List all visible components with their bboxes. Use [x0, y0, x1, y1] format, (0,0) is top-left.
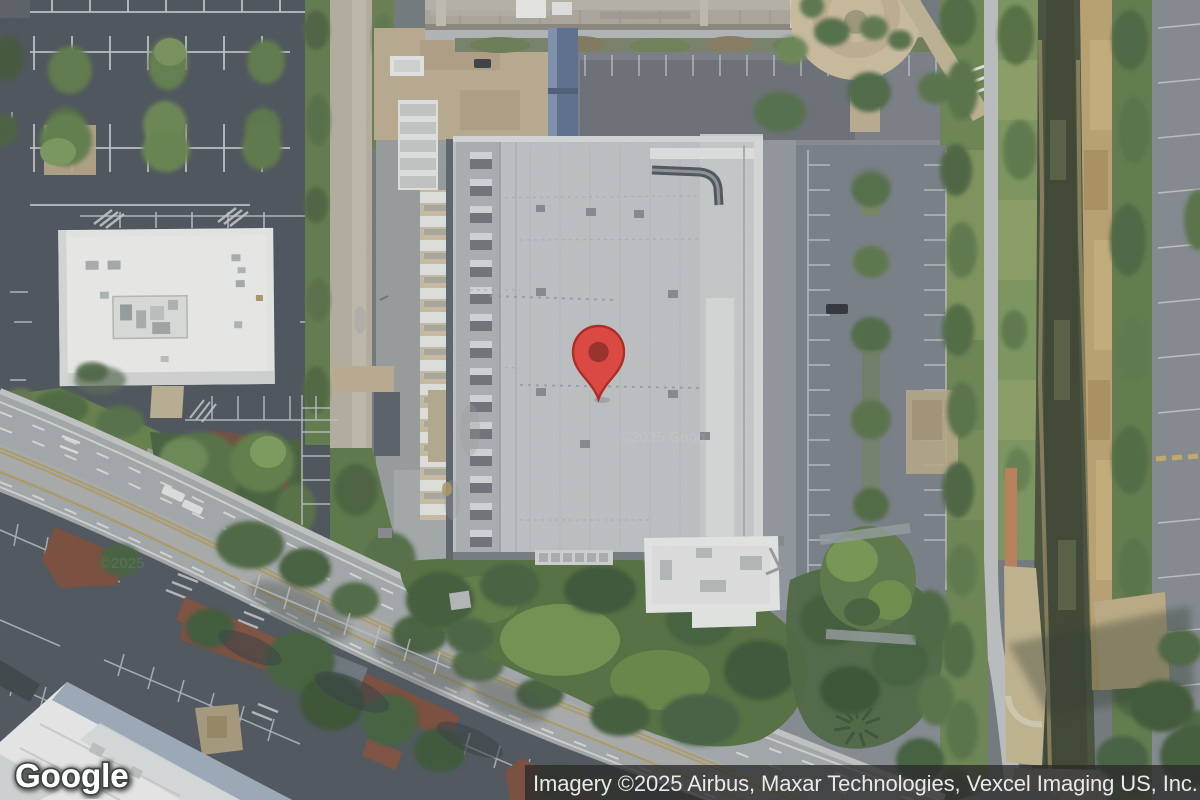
svg-text:Google: Google	[15, 757, 129, 794]
svg-text:Imagery ©2025 Airbus, Maxar Te: Imagery ©2025 Airbus, Maxar Technologies…	[533, 771, 1198, 796]
